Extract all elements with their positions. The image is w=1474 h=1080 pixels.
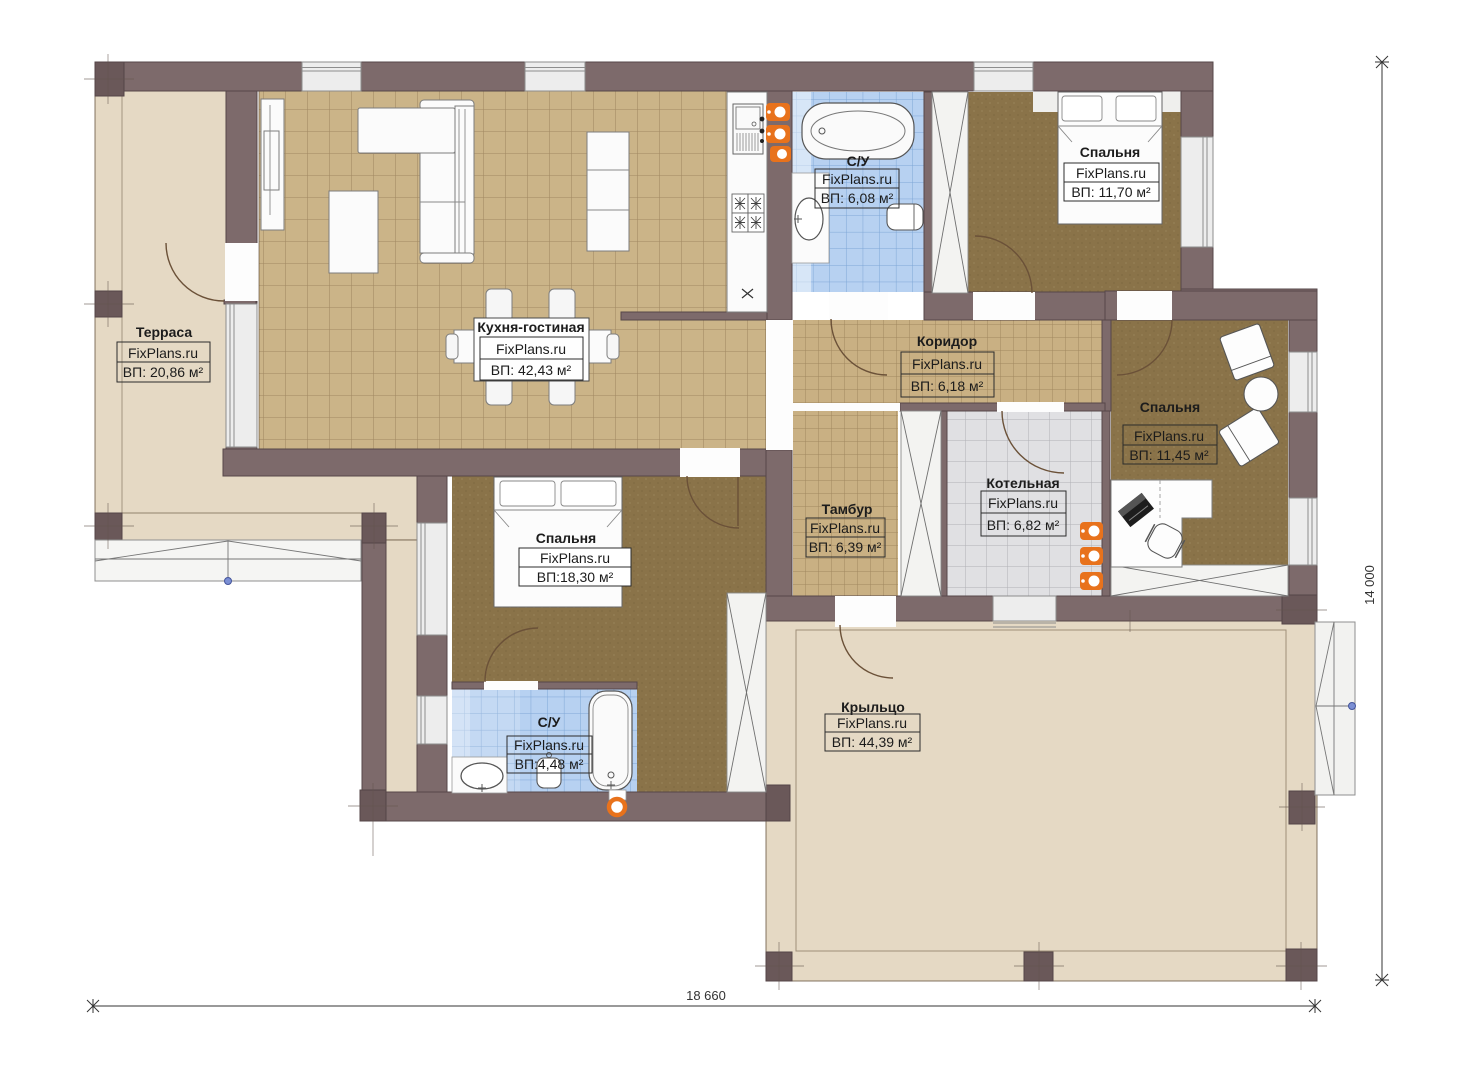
- svg-text:FixPlans.ru: FixPlans.ru: [540, 550, 610, 566]
- svg-text:FixPlans.ru: FixPlans.ru: [514, 737, 584, 753]
- svg-text:Кухня-гостиная: Кухня-гостиная: [477, 319, 584, 335]
- svg-text:Терраса: Терраса: [136, 324, 192, 340]
- svg-text:FixPlans.ru: FixPlans.ru: [496, 341, 566, 357]
- svg-text:FixPlans.ru: FixPlans.ru: [837, 715, 907, 731]
- svg-text:Коридор: Коридор: [917, 333, 977, 349]
- svg-text:FixPlans.ru: FixPlans.ru: [1134, 428, 1204, 444]
- svg-text:FixPlans.ru: FixPlans.ru: [988, 495, 1058, 511]
- svg-text:FixPlans.ru: FixPlans.ru: [1076, 165, 1146, 181]
- svg-text:ВП:4,48 м²: ВП:4,48 м²: [515, 756, 584, 772]
- svg-text:FixPlans.ru: FixPlans.ru: [810, 520, 880, 536]
- svg-text:FixPlans.ru: FixPlans.ru: [912, 356, 982, 372]
- svg-text:ВП: 6,82 м²: ВП: 6,82 м²: [987, 517, 1060, 533]
- svg-text:ВП: 6,39 м²: ВП: 6,39 м²: [809, 539, 882, 555]
- svg-text:С/У: С/У: [847, 153, 870, 169]
- svg-text:Крыльцо: Крыльцо: [841, 699, 905, 715]
- svg-text:Котельная: Котельная: [986, 475, 1059, 491]
- svg-text:Спальня: Спальня: [1080, 144, 1140, 160]
- svg-text:ВП: 44,39 м²: ВП: 44,39 м²: [832, 734, 913, 750]
- svg-text:ВП: 6,08 м²: ВП: 6,08 м²: [821, 190, 894, 206]
- svg-text:ВП: 11,70 м²: ВП: 11,70 м²: [1071, 184, 1151, 200]
- svg-text:FixPlans.ru: FixPlans.ru: [128, 345, 198, 361]
- svg-text:ВП:18,30 м²: ВП:18,30 м²: [537, 569, 614, 585]
- svg-text:ВП: 6,18 м²: ВП: 6,18 м²: [911, 378, 984, 394]
- svg-text:14 000: 14 000: [1362, 565, 1377, 605]
- svg-text:Спальня: Спальня: [536, 530, 596, 546]
- svg-text:ВП: 11,45 м²: ВП: 11,45 м²: [1129, 447, 1209, 463]
- svg-text:ВП: 42,43 м²: ВП: 42,43 м²: [491, 362, 572, 378]
- svg-text:18 660: 18 660: [686, 988, 726, 1003]
- svg-text:С/У: С/У: [538, 714, 561, 730]
- svg-text:ВП: 20,86 м²: ВП: 20,86 м²: [123, 364, 204, 380]
- svg-text:Тамбур: Тамбур: [822, 501, 873, 517]
- svg-text:FixPlans.ru: FixPlans.ru: [822, 171, 892, 187]
- svg-text:Спальня: Спальня: [1140, 399, 1200, 415]
